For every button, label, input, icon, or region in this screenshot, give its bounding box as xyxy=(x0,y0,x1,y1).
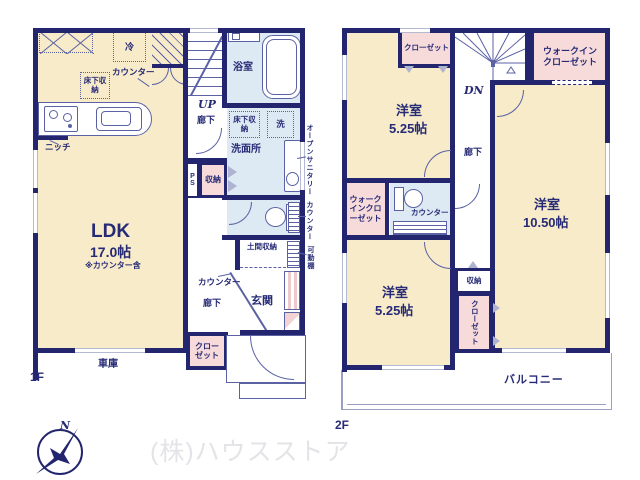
compass-icon xyxy=(20,422,96,478)
toilet-tank-2f xyxy=(394,187,404,211)
storage-2f-label: 収納 xyxy=(467,277,482,286)
window xyxy=(342,55,347,100)
closet-door-mark xyxy=(493,336,500,346)
hall-2f-label: 廊下 xyxy=(464,147,482,157)
wic-right: ウォークインクローゼット xyxy=(530,28,610,85)
compass-north-label: N xyxy=(60,420,70,433)
window xyxy=(502,348,566,353)
stairs-dn-label: DN xyxy=(464,85,484,98)
toilet-counter-label: カウンター xyxy=(411,209,449,218)
window xyxy=(382,365,444,370)
floor2-label: 2F xyxy=(335,419,349,433)
toilet-2f-counter-strip xyxy=(393,221,447,235)
window xyxy=(605,253,610,318)
wall-segment xyxy=(525,28,530,85)
wic-left-label: ウォークインクローゼット xyxy=(349,195,383,223)
dashed-opening xyxy=(552,80,592,85)
closet-door-mark xyxy=(404,66,414,73)
room-c-size: 5.25帖 xyxy=(375,304,413,319)
wic-left: ウォークインクローゼット xyxy=(342,178,389,240)
closet-mid-2f-label: クローゼット xyxy=(470,300,479,345)
room-a-name: 洋室 xyxy=(396,104,422,119)
toilet-bowl-2f xyxy=(404,189,423,208)
window xyxy=(342,253,347,303)
storage-door-mark xyxy=(468,261,478,268)
balcony-rail-inner xyxy=(347,404,606,405)
floor-plan: 冷 床下収納 床下収納 洗 PS 収納 xyxy=(0,0,640,480)
closet-top-2f-label: クローゼット xyxy=(404,44,449,53)
balcony-label: バルコニー xyxy=(504,374,564,387)
room-a-size: 5.25帖 xyxy=(389,122,427,137)
closet-mid-2f: クローゼット xyxy=(455,292,493,353)
room-b-name: 洋室 xyxy=(534,198,560,213)
floor2-plan: クローゼット ウォークインクローゼット ウォークインクローゼット 収納 クローゼ… xyxy=(0,0,640,480)
wall-segment xyxy=(342,235,455,240)
window xyxy=(605,143,610,195)
watermark: (株)ハウスストア xyxy=(150,438,351,467)
room-c-name: 洋室 xyxy=(382,286,408,301)
closet-door-mark xyxy=(493,303,500,313)
window xyxy=(400,28,430,33)
closet-door-mark xyxy=(438,66,448,73)
wall-segment xyxy=(342,178,455,183)
storage-2f: 収納 xyxy=(455,268,493,294)
wic-right-label: ウォークインクローゼット xyxy=(539,46,601,67)
stairs-2f xyxy=(455,33,525,85)
wall-segment xyxy=(490,80,610,85)
wall-segment xyxy=(342,28,610,33)
closet-top-2f: クローゼット xyxy=(398,28,455,68)
room-b-size: 10.50帖 xyxy=(523,216,569,231)
balcony-rail-left xyxy=(341,370,343,410)
